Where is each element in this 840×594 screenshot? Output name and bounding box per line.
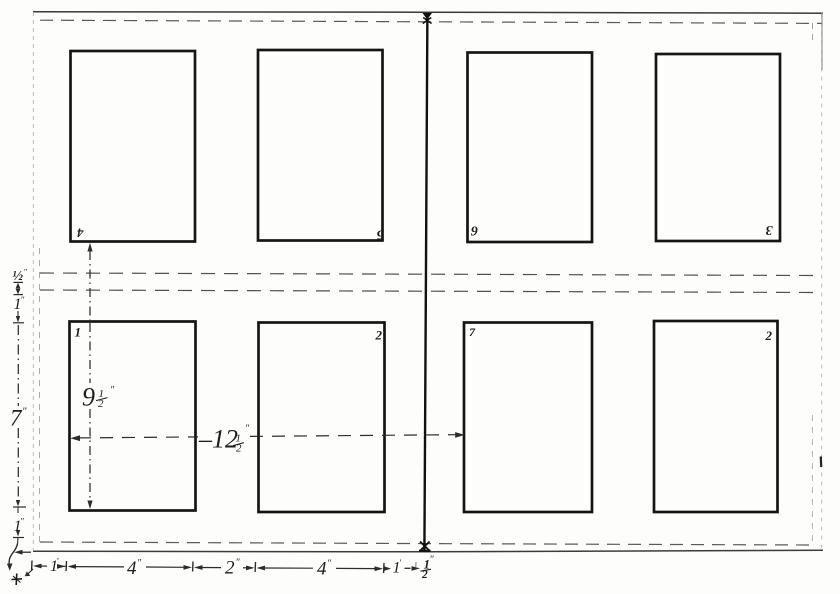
svg-text:2: 2 xyxy=(98,398,104,410)
svg-text:4: 4 xyxy=(317,559,327,580)
svg-text:2: 2 xyxy=(375,328,383,343)
svg-text:5: 5 xyxy=(376,227,384,243)
svg-text:–12: –12 xyxy=(198,425,238,454)
svg-text:″: ″ xyxy=(137,558,142,569)
svg-text:2: 2 xyxy=(236,443,242,455)
svg-text:9: 9 xyxy=(82,383,95,412)
svg-text:½: ½ xyxy=(13,269,24,284)
svg-text:″: ″ xyxy=(24,268,28,277)
svg-text:″: ″ xyxy=(430,555,435,566)
svg-text:2: 2 xyxy=(421,569,428,581)
svg-text:″: ″ xyxy=(327,559,332,570)
svg-text:″: ″ xyxy=(245,424,250,435)
svg-text:3: 3 xyxy=(766,222,774,237)
svg-text:1: 1 xyxy=(75,325,82,340)
svg-text:6: 6 xyxy=(471,223,478,238)
svg-text:4: 4 xyxy=(127,558,137,579)
svg-text:″: ″ xyxy=(21,295,25,305)
svg-text:7: 7 xyxy=(469,325,476,339)
svg-text:″: ″ xyxy=(22,406,27,418)
svg-text:″: ″ xyxy=(20,517,24,527)
svg-text:2: 2 xyxy=(225,558,235,579)
svg-text:′: ′ xyxy=(399,558,402,568)
svg-text:2: 2 xyxy=(765,328,773,343)
svg-text:″: ″ xyxy=(110,385,115,396)
svg-text:″: ″ xyxy=(236,558,241,569)
svg-text:4: 4 xyxy=(77,226,85,241)
